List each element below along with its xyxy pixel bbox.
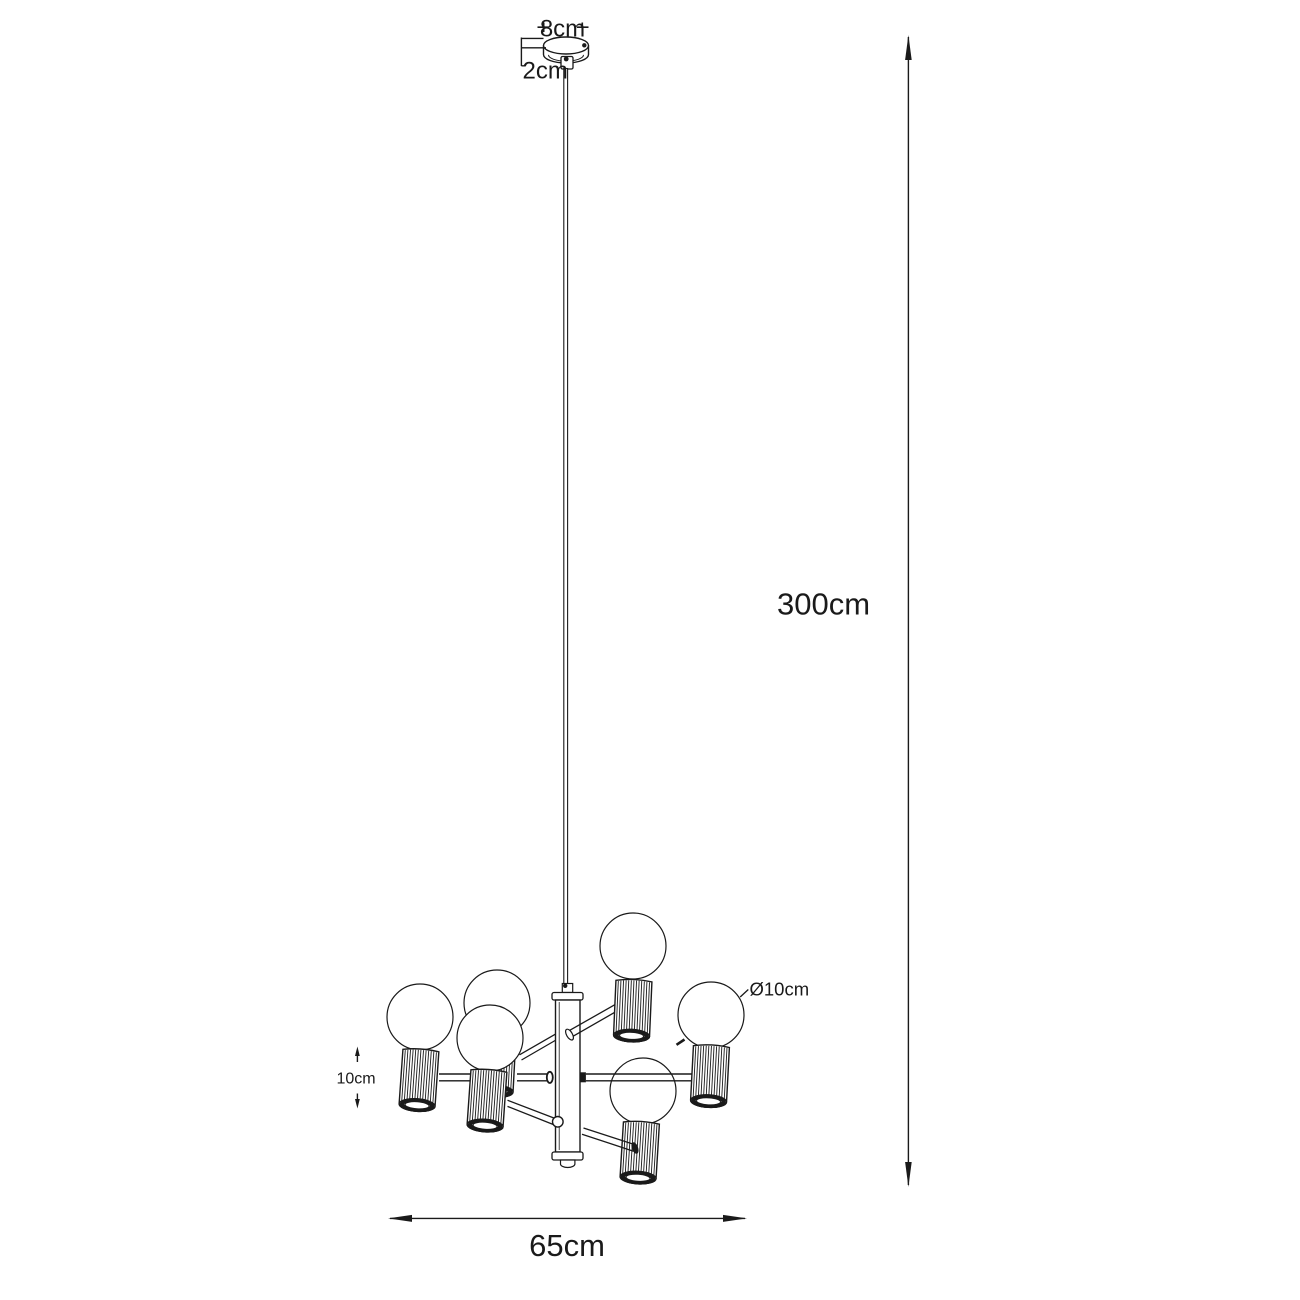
leader-line <box>740 990 748 998</box>
chandelier-dimension-drawing: 8cm 2cm 300cm 65cm 10cm Ø10cm <box>0 0 1300 1300</box>
bulb-left <box>387 984 453 1050</box>
arrow-up-icon <box>905 35 912 60</box>
dim-fixture-width: 65cm <box>388 1215 747 1263</box>
arrow-down-icon <box>905 1162 912 1187</box>
diagram-canvas: 8cm 2cm 300cm 65cm 10cm Ø10cm <box>0 0 1300 1300</box>
dim-label-canopy-width: 8cm <box>540 16 585 43</box>
bulb-bottom <box>610 1058 676 1124</box>
canopy-screw <box>582 43 586 47</box>
leader-tick <box>677 1040 685 1045</box>
dim-canopy-width: 8cm <box>538 16 589 43</box>
dim-label-bulb-diameter: Ø10cm <box>750 979 810 1000</box>
dim-suspension-length: 300cm <box>777 35 912 1187</box>
dim-label-shade-height: 10cm <box>336 1071 375 1088</box>
dim-shade-height: 10cm <box>336 1047 375 1109</box>
bulb-top <box>600 913 666 979</box>
bulb-mid-left <box>457 1005 523 1071</box>
arm-lower-left <box>508 1100 564 1127</box>
rod-column-connector <box>562 984 572 993</box>
arm-upper-left <box>520 1034 557 1060</box>
shade-mid-left <box>467 1068 507 1133</box>
arrow-left-icon <box>388 1215 412 1222</box>
dim-label-fixture-width: 65cm <box>529 1228 605 1263</box>
arrow-down-small-icon <box>355 1099 360 1109</box>
shade-left <box>399 1048 439 1113</box>
arm-connector-right <box>580 1072 586 1082</box>
bulb-right <box>678 982 744 1048</box>
dim-label-suspension-length: 300cm <box>777 587 870 622</box>
shade-bottom <box>620 1120 660 1184</box>
arrow-right-icon <box>723 1215 747 1222</box>
central-column <box>552 993 583 1168</box>
arrow-up-small-icon <box>355 1047 360 1057</box>
shade-right <box>690 1044 729 1108</box>
shade-top <box>613 979 652 1043</box>
dim-label-canopy-height: 2cm <box>523 58 568 85</box>
column-bottom-knob <box>561 1160 575 1168</box>
suspension-rod <box>564 69 568 985</box>
